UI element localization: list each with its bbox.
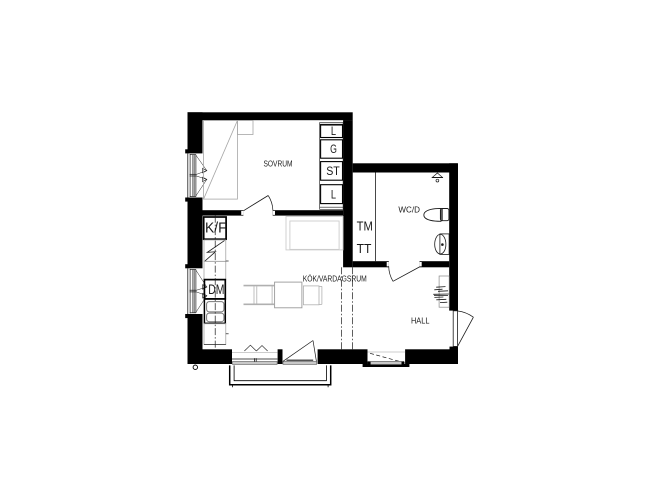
svg-text:DM: DM [208,282,224,297]
svg-text:K/F: K/F [205,219,227,236]
svg-text:TT: TT [357,241,372,256]
svg-text:L: L [331,124,336,138]
svg-text:SOVRUM: SOVRUM [264,159,293,169]
svg-text:ST: ST [326,164,340,178]
svg-text:KÖK/VARDAGSRUM: KÖK/VARDAGSRUM [303,274,367,283]
svg-text:HALL: HALL [411,315,430,325]
svg-text:WC/D: WC/D [398,205,420,214]
svg-text:G: G [330,142,337,156]
svg-text:L: L [331,188,336,202]
svg-text:TM: TM [357,219,373,234]
